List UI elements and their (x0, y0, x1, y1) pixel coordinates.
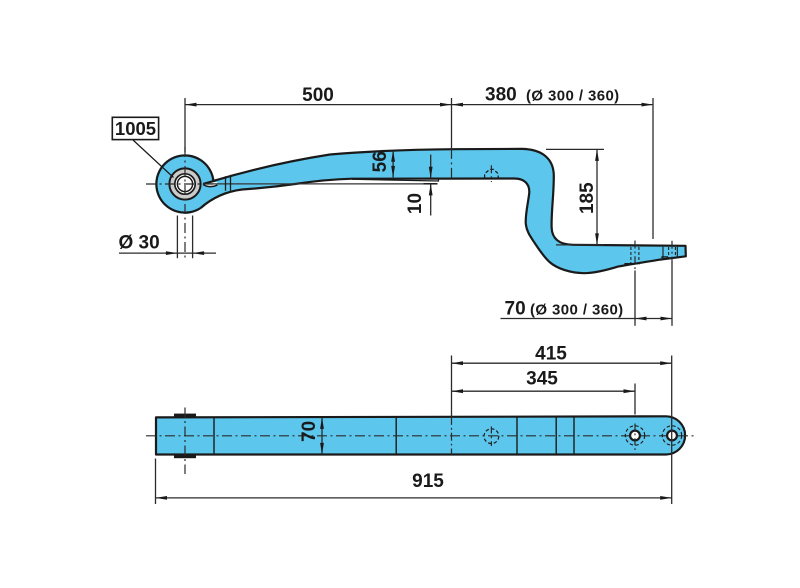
svg-text:70: 70 (505, 299, 526, 320)
svg-text:(Ø 300 / 360): (Ø 300 / 360) (530, 302, 624, 319)
svg-text:1005: 1005 (115, 118, 156, 139)
svg-text:(Ø 300 / 360): (Ø 300 / 360) (526, 88, 620, 105)
svg-text:185: 185 (577, 182, 598, 214)
svg-text:415: 415 (535, 343, 567, 364)
svg-text:10: 10 (405, 193, 426, 214)
svg-text:70: 70 (299, 421, 320, 442)
svg-text:345: 345 (526, 369, 558, 390)
svg-text:Ø 30: Ø 30 (119, 232, 160, 253)
svg-text:380: 380 (485, 85, 517, 106)
svg-text:915: 915 (412, 471, 444, 492)
svg-text:500: 500 (302, 85, 334, 106)
svg-text:56: 56 (370, 151, 391, 172)
